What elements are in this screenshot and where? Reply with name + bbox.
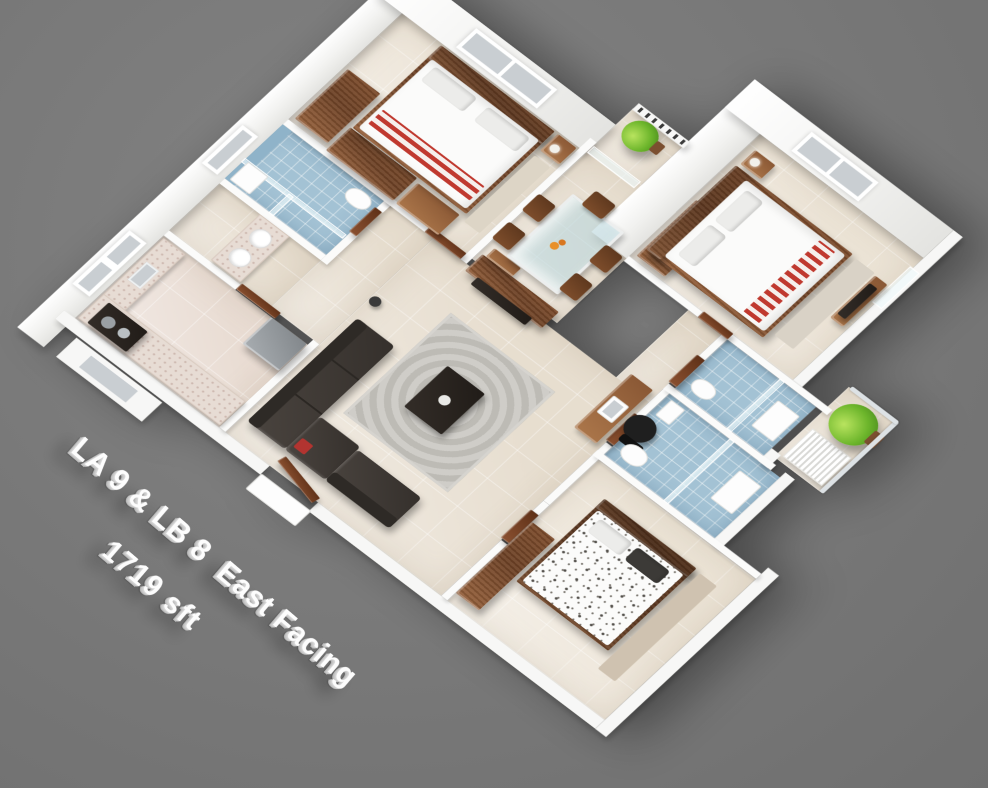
sofa-cushion-seam xyxy=(332,359,360,380)
pot xyxy=(98,314,118,331)
table-dish xyxy=(436,393,454,408)
render-canvas: { "canvas": {"width": 988, "height": 788… xyxy=(0,0,988,788)
pot xyxy=(115,326,133,341)
sofa-cushion-seam xyxy=(295,394,323,415)
